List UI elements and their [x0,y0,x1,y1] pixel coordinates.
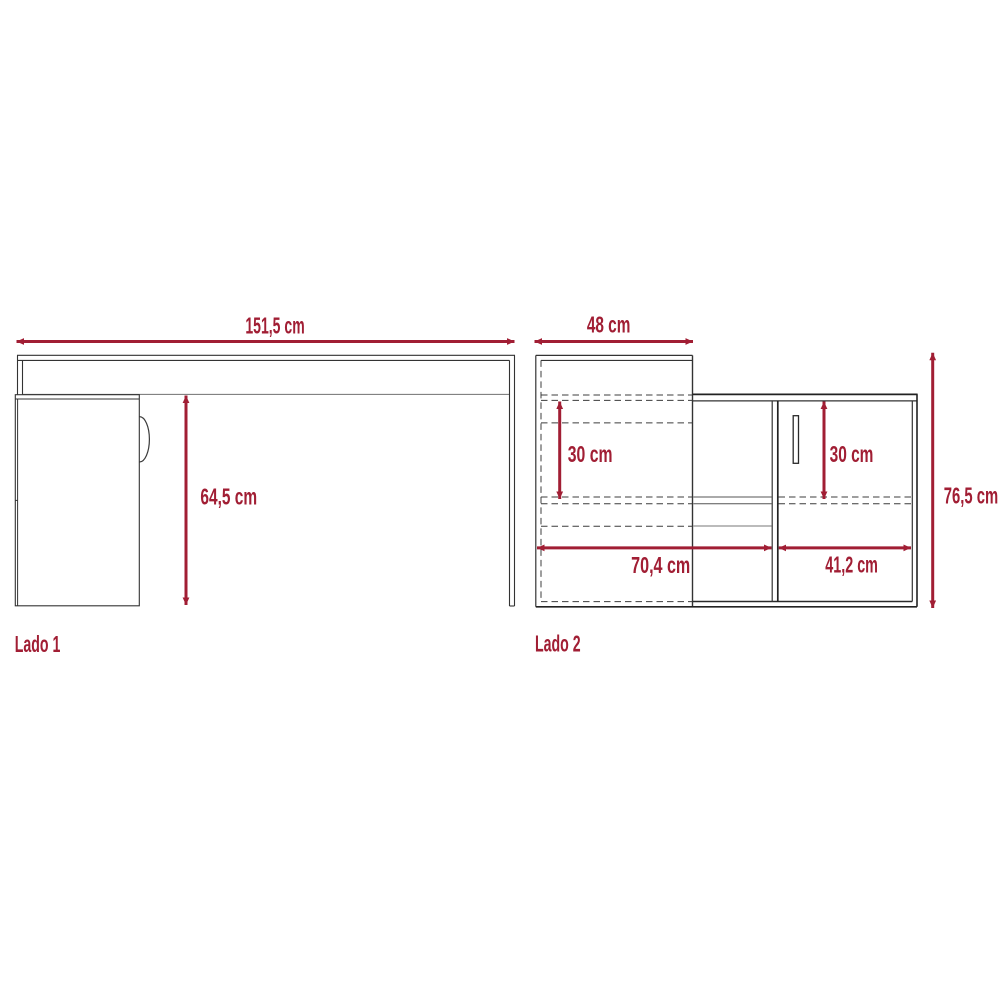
svg-text:70,4 cm: 70,4 cm [631,553,690,578]
svg-text:151,5 cm: 151,5 cm [245,314,304,339]
svg-text:64,5 cm: 64,5 cm [200,485,257,511]
svg-text:41,2 cm: 41,2 cm [825,553,878,578]
svg-text:Lado 1: Lado 1 [15,633,61,658]
svg-text:30 cm: 30 cm [568,442,613,468]
svg-text:30 cm: 30 cm [830,442,874,468]
svg-text:76,5 cm: 76,5 cm [944,483,998,509]
svg-text:Lado 2: Lado 2 [535,632,581,657]
svg-text:48 cm: 48 cm [587,313,631,339]
